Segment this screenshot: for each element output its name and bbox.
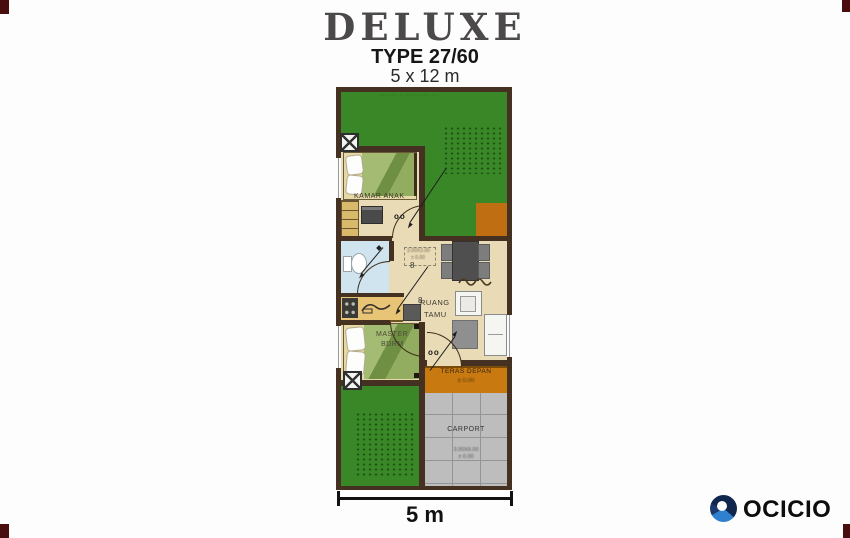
ceiling-point-1: 8	[410, 261, 414, 270]
wall-outer-right	[507, 87, 512, 490]
living-dim-line1: 3.00X3.00	[407, 249, 430, 255]
scale-bar-tick-right	[510, 491, 513, 506]
garden-annotation: ·· ··· · ···· ··· ··	[380, 93, 438, 100]
carport-floor	[425, 393, 507, 486]
carport-label: CARPORT	[425, 426, 507, 434]
carport-elev: ± 0.00	[425, 454, 507, 460]
wall-mid-left	[336, 236, 392, 241]
brand-logo-icon-hole	[717, 501, 727, 511]
window-child-room	[336, 158, 341, 198]
child-desk	[361, 206, 383, 224]
wall-mid-right	[424, 236, 512, 241]
dining-chair-3	[478, 244, 490, 261]
dining-chair-4	[478, 262, 490, 279]
decor-squiggle	[458, 278, 496, 287]
stove	[342, 298, 358, 318]
sink-faucet	[360, 299, 394, 315]
child-wardrobe	[341, 200, 359, 238]
dining-table	[452, 241, 479, 281]
living-dim-box: 3.00X3.00 ± 0.00	[404, 247, 436, 266]
sofa-cushion-divider	[488, 334, 503, 335]
meter-box-back	[340, 133, 359, 152]
ceiling-point-2: 8	[418, 296, 422, 305]
wall-outer-bottom	[336, 486, 512, 490]
brand-name: OCICIO	[743, 496, 831, 524]
sofa-two-seat	[484, 314, 507, 356]
door-mark-child: oo	[394, 212, 406, 221]
garden-planter	[476, 203, 507, 236]
wall-master-top	[336, 320, 390, 325]
shrub-texture-front	[355, 412, 415, 478]
scale-bar-label: 5 m	[350, 502, 500, 527]
room-label-ruang-1: RUANG	[420, 299, 450, 308]
brand-logo-icon	[710, 495, 737, 522]
room-label-kamar-anak: KAMAR ANAK	[354, 193, 405, 201]
tv-cabinet	[403, 304, 421, 321]
armchair	[455, 291, 482, 316]
scale-bar-line	[338, 497, 512, 500]
master-pillow-1	[345, 326, 366, 352]
teras-elev: ± 0.00	[425, 378, 507, 385]
child-pillow-1	[345, 154, 364, 176]
window-living-room	[507, 315, 512, 357]
wall-outer-top	[336, 87, 512, 92]
wall-living-bottom-right	[461, 360, 512, 366]
door-mark-front: oo	[428, 348, 440, 357]
meter-box-front	[343, 371, 362, 390]
carport-dim: 3.00X6.00	[425, 447, 507, 453]
floorplan-poster: DELUXE TYPE 27/60 5 x 12 m ·· ··· · ····…	[0, 0, 850, 538]
floorplan: ·· ··· · ···· ··· ·· KAMAR ANAK MASTER	[0, 0, 850, 538]
shrub-texture-back	[443, 126, 501, 174]
armchair-seat	[460, 296, 476, 312]
room-label-ruang-2: TAMU	[424, 311, 447, 320]
window-master-room	[336, 326, 341, 368]
teras-label: TERAS DEPAN	[425, 368, 507, 375]
child-bed-blanket	[362, 153, 417, 196]
brand-logo: OCICIO	[710, 494, 840, 524]
scale-bar-tick-left	[337, 491, 340, 506]
wall-bath-right	[389, 241, 394, 261]
